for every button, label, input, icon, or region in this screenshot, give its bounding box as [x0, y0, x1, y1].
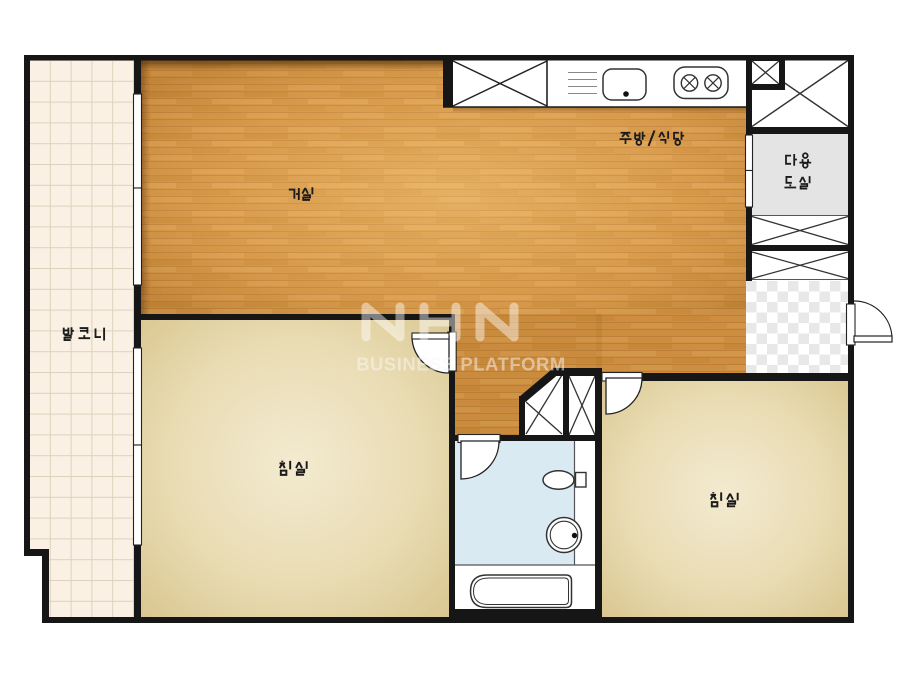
svg-text:BUSINESS PLATFORM: BUSINESS PLATFORM [356, 354, 566, 375]
